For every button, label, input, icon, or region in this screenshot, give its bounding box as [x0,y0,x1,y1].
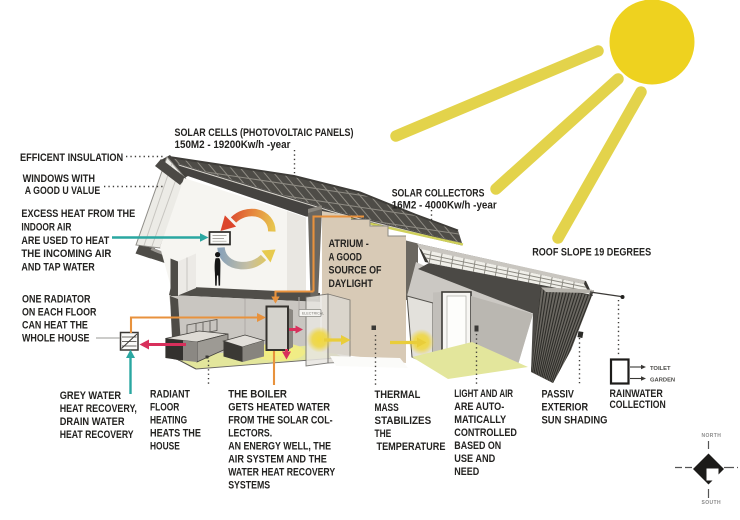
svg-text:EXTERIOR: EXTERIOR [542,402,589,414]
svg-text:CONTROLLED: CONTROLLED [454,427,517,439]
svg-text:USE AND: USE AND [454,453,495,465]
svg-text:HEAT RECOVERY,: HEAT RECOVERY, [60,403,137,415]
svg-text:AIR SYSTEM AND THE: AIR SYSTEM AND THE [228,454,327,466]
svg-text:WHOLE HOUSE: WHOLE HOUSE [22,332,90,344]
svg-text:150M2 - 19200Kw/h -year: 150M2 - 19200Kw/h -year [175,139,291,152]
svg-text:LECTORS.: LECTORS. [228,428,272,440]
svg-text:SOLAR CELLS (PHOTOVOLTAIC PANE: SOLAR CELLS (PHOTOVOLTAIC PANELS) [175,127,354,139]
svg-text:EXCESS HEAT FROM THE: EXCESS HEAT FROM THE [21,208,135,220]
svg-text:WINDOWS WITH: WINDOWS WITH [23,173,95,185]
svg-text:AND TAP WATER: AND TAP WATER [21,262,95,274]
svg-text:ARE USED TO HEAT: ARE USED TO HEAT [21,235,110,247]
svg-text:STABILIZES: STABILIZES [375,414,432,427]
svg-text:THERMAL: THERMAL [375,389,421,401]
svg-text:BASED ON: BASED ON [454,440,501,452]
svg-text:HOUSE: HOUSE [150,440,180,452]
svg-text:SUN SHADING: SUN SHADING [542,415,608,427]
svg-text:MASS: MASS [375,402,400,414]
svg-text:NORTH: NORTH [702,433,722,439]
svg-text:HEATING: HEATING [150,414,187,426]
svg-text:MATICALLY: MATICALLY [454,414,506,426]
svg-text:DRAIN WATER: DRAIN WATER [60,416,125,428]
svg-text:GETS HEATED WATER: GETS HEATED WATER [228,402,330,414]
svg-text:COLLECTION: COLLECTION [610,399,666,411]
svg-text:HEATS THE: HEATS THE [150,428,201,440]
svg-text:FLOOR: FLOOR [150,401,179,413]
svg-text:16M2 - 4000Kw/h -year: 16M2 - 4000Kw/h -year [392,199,497,212]
svg-text:ROOF SLOPE 19 DEGREES: ROOF SLOPE 19 DEGREES [532,247,651,259]
svg-text:A GOOD: A GOOD [329,251,362,263]
svg-text:GARDEN: GARDEN [650,378,675,384]
svg-text:ON EACH FLOOR: ON EACH FLOOR [22,306,97,318]
svg-text:ELECTRICAL: ELECTRICAL [302,312,324,316]
svg-text:INDOOR AIR: INDOOR AIR [21,221,71,233]
svg-text:SYSTEMS: SYSTEMS [228,480,270,492]
svg-text:CAN HEAT THE: CAN HEAT THE [22,319,88,331]
svg-text:ARE AUTO-: ARE AUTO- [454,401,504,413]
svg-text:HEAT RECOVERY: HEAT RECOVERY [60,429,134,441]
svg-text:NEED: NEED [454,466,479,478]
svg-text:A GOOD U VALUE: A GOOD U VALUE [25,185,101,197]
svg-text:SOUTH: SOUTH [702,500,722,506]
svg-text:THE BOILER: THE BOILER [228,389,287,401]
svg-text:ATRIUM -: ATRIUM - [329,238,369,250]
svg-text:THE: THE [375,428,392,440]
svg-text:AN ENERGY WELL, THE: AN ENERGY WELL, THE [228,441,331,453]
svg-text:ONE RADIATOR: ONE RADIATOR [22,293,91,305]
svg-text:SOURCE OF: SOURCE OF [329,265,382,277]
svg-text:PASSIV: PASSIV [542,389,575,401]
svg-text:EFFICENT INSULATION: EFFICENT INSULATION [20,152,123,164]
svg-text:WATER HEAT RECOVERY: WATER HEAT RECOVERY [228,467,335,479]
svg-text:FROM THE SOLAR COL-: FROM THE SOLAR COL- [228,415,332,427]
svg-text:TOILET: TOILET [650,366,671,372]
svg-text:GREY WATER: GREY WATER [60,390,122,402]
svg-text:LIGHT AND AIR: LIGHT AND AIR [454,388,513,401]
svg-text:DAYLIGHT: DAYLIGHT [329,278,374,290]
svg-text:SOLAR COLLECTORS: SOLAR COLLECTORS [392,187,485,199]
svg-text:RADIANT: RADIANT [150,389,191,401]
svg-text:THE INCOMING AIR: THE INCOMING AIR [21,249,111,261]
svg-text:TEMPERATURE: TEMPERATURE [377,441,446,453]
